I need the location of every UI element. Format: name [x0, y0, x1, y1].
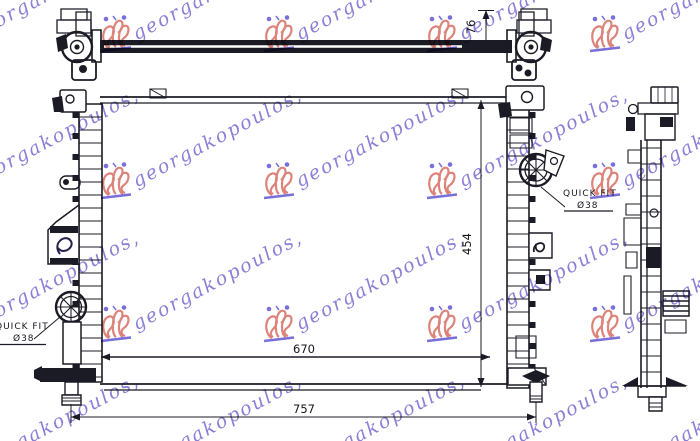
front-view: 670 757 454	[34, 86, 564, 423]
dim-670-label: 670	[293, 342, 315, 356]
top-view-left-fitting	[56, 9, 101, 80]
right-mount-pin	[508, 368, 550, 414]
dim-76-label: 76	[464, 20, 478, 35]
front-view-right-tank	[498, 86, 564, 414]
quick-fit-right-diameter: Ø38	[577, 200, 599, 211]
left-drain-assembly	[34, 366, 96, 414]
dim-757-label: 757	[293, 402, 315, 416]
radiator-technical-drawing-page: 76	[0, 0, 700, 441]
dim-454-label: 454	[460, 233, 474, 255]
dimension-core-width: 670	[101, 342, 490, 361]
top-view-right-fitting	[507, 9, 552, 80]
side-view-mount-pin	[622, 377, 688, 411]
dimension-overall-width: 757	[71, 402, 536, 423]
quick-fit-right-title: QUICK FIT	[563, 189, 617, 199]
quick-fit-left-diameter: Ø38	[13, 333, 35, 344]
quick-fit-callout-left: QUICK FIT Ø38	[0, 317, 60, 345]
dimension-core-height: 454	[460, 100, 485, 387]
left-quick-fit-connector	[56, 292, 86, 322]
top-view: 76	[56, 9, 552, 80]
front-view-left-tank	[34, 90, 102, 414]
drawing-svg: 76	[0, 0, 700, 441]
side-view	[622, 87, 689, 411]
side-view-bushing	[663, 291, 689, 316]
top-view-crossbar	[100, 40, 512, 53]
quick-fit-callout-right: QUICK FIT Ø38	[541, 187, 617, 211]
quick-fit-left-title: QUICK FIT	[0, 322, 49, 332]
left-reservoir	[48, 205, 79, 264]
